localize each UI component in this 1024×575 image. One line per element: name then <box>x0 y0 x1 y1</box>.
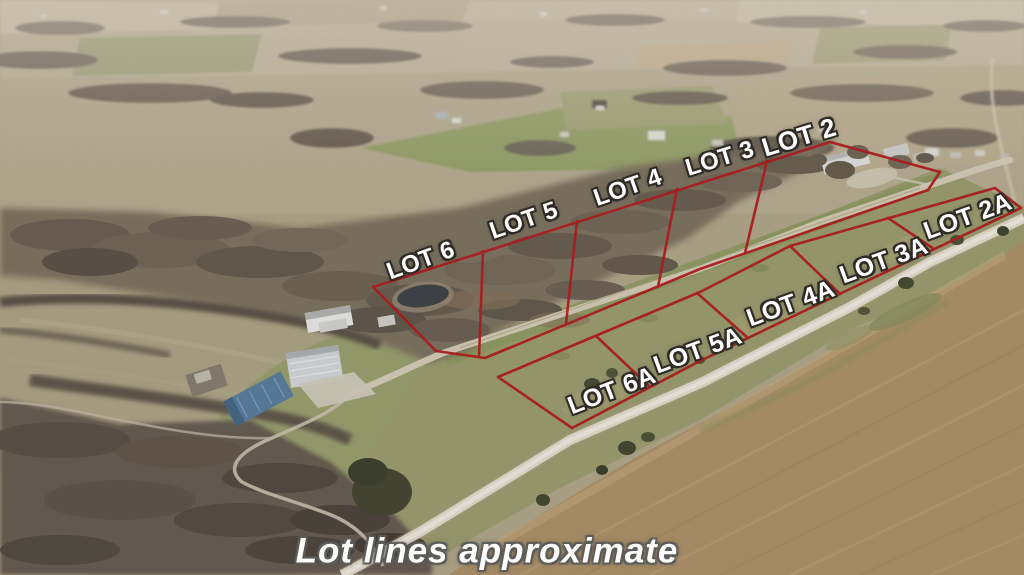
aerial-photo: LOT 6 LOT 5 LOT 4 LOT 3 LOT 2 LOT 6A LOT… <box>0 0 1024 575</box>
aerial-photo-painting <box>0 0 1024 575</box>
photo-grain <box>0 0 1024 575</box>
watermark-text: Lot lines approximate <box>296 534 679 569</box>
